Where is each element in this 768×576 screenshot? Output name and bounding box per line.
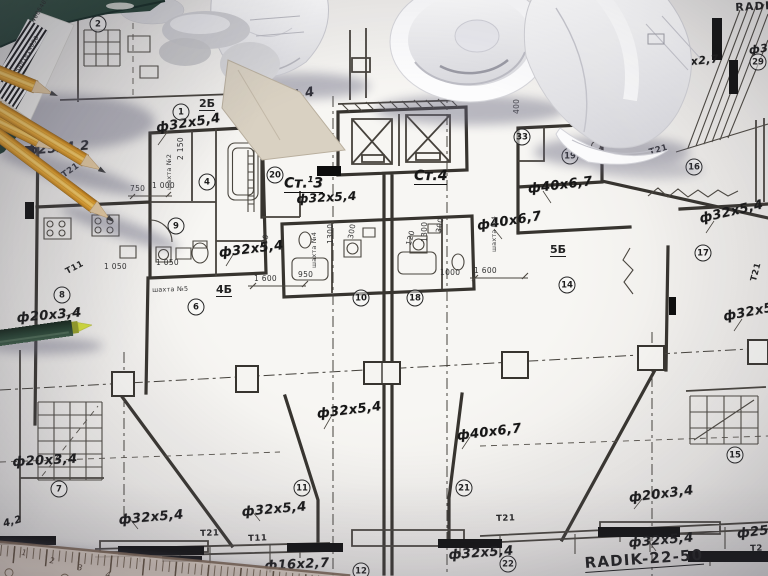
object-shadows bbox=[0, 73, 703, 576]
desk-objects bbox=[0, 0, 768, 576]
blueprint-photo-scene: ф32х5,4ф25х4,2ф32х5,4ф32х5,4ф20х3,4ф32х5… bbox=[0, 0, 768, 576]
ruler bbox=[0, 540, 350, 576]
